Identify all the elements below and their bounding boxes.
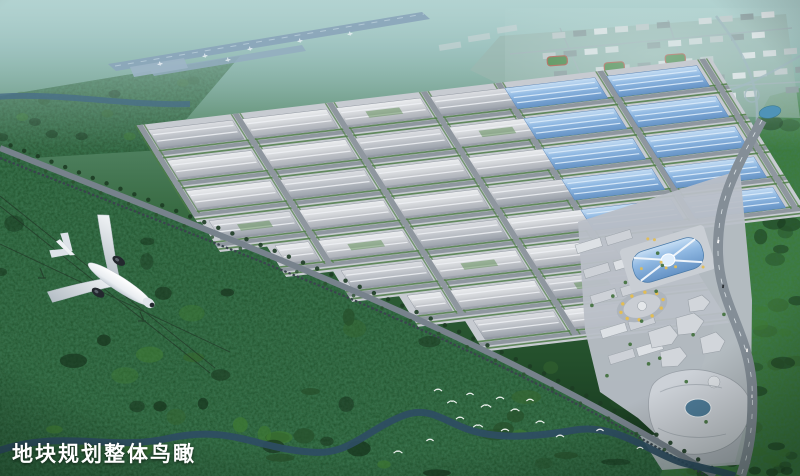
masterplan-scene [0, 0, 800, 476]
aerial-rendering: 地块规划整体鸟瞰 [0, 0, 800, 476]
vignette [0, 0, 800, 476]
caption: 地块规划整体鸟瞰 [12, 438, 196, 468]
